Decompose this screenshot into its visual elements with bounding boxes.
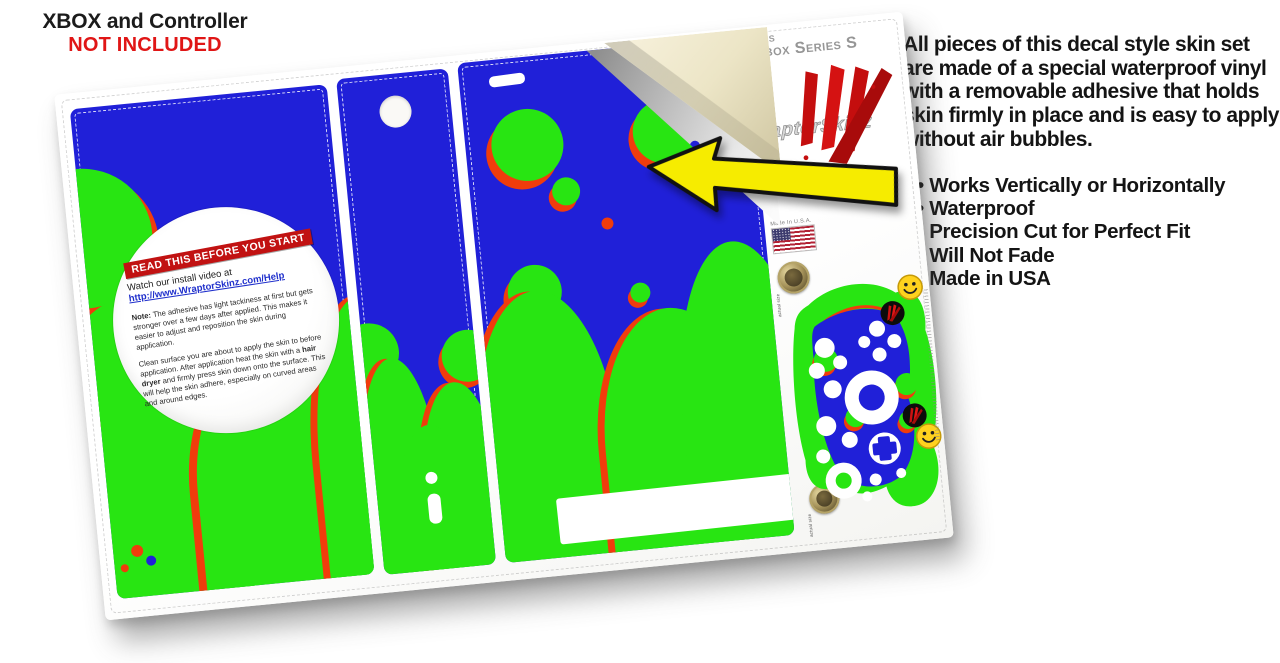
disclaimer: XBOX and Controller NOT INCLUDED <box>30 10 260 57</box>
smiley-sticker-icon <box>896 273 924 301</box>
feature-item: Waterproof <box>917 197 1280 220</box>
feature-item: Will Not Fade <box>917 244 1280 267</box>
description-paragraph: All pieces of this decal style skin set … <box>903 33 1280 152</box>
skin-panel-left: READ THIS BEFORE YOU START Watch our ins… <box>70 84 375 599</box>
usa-flag-icon <box>771 224 817 254</box>
skin-sheet: READ THIS BEFORE YOU START Watch our ins… <box>54 12 953 621</box>
disclaimer-line1: XBOX and Controller <box>30 10 260 34</box>
controller-skin <box>776 263 950 528</box>
feature-item: Precision Cut for Perfect Fit <box>917 220 1280 243</box>
hang-hole <box>378 94 413 129</box>
feature-list: Works Vertically or Horizontally Waterpr… <box>917 174 1280 291</box>
slot-cutout <box>488 72 525 88</box>
product-description: All pieces of this decal style skin set … <box>903 33 1280 290</box>
port-cutout <box>427 493 443 524</box>
feature-item: Works Vertically or Horizontally <box>917 174 1280 197</box>
feature-item: Made in USA <box>917 267 1280 290</box>
wz-sticker-icon <box>878 299 906 327</box>
product-image: XBOX and Controller NOT INCLUDED All pie… <box>0 0 1280 663</box>
disclaimer-line2: NOT INCLUDED <box>30 34 260 57</box>
